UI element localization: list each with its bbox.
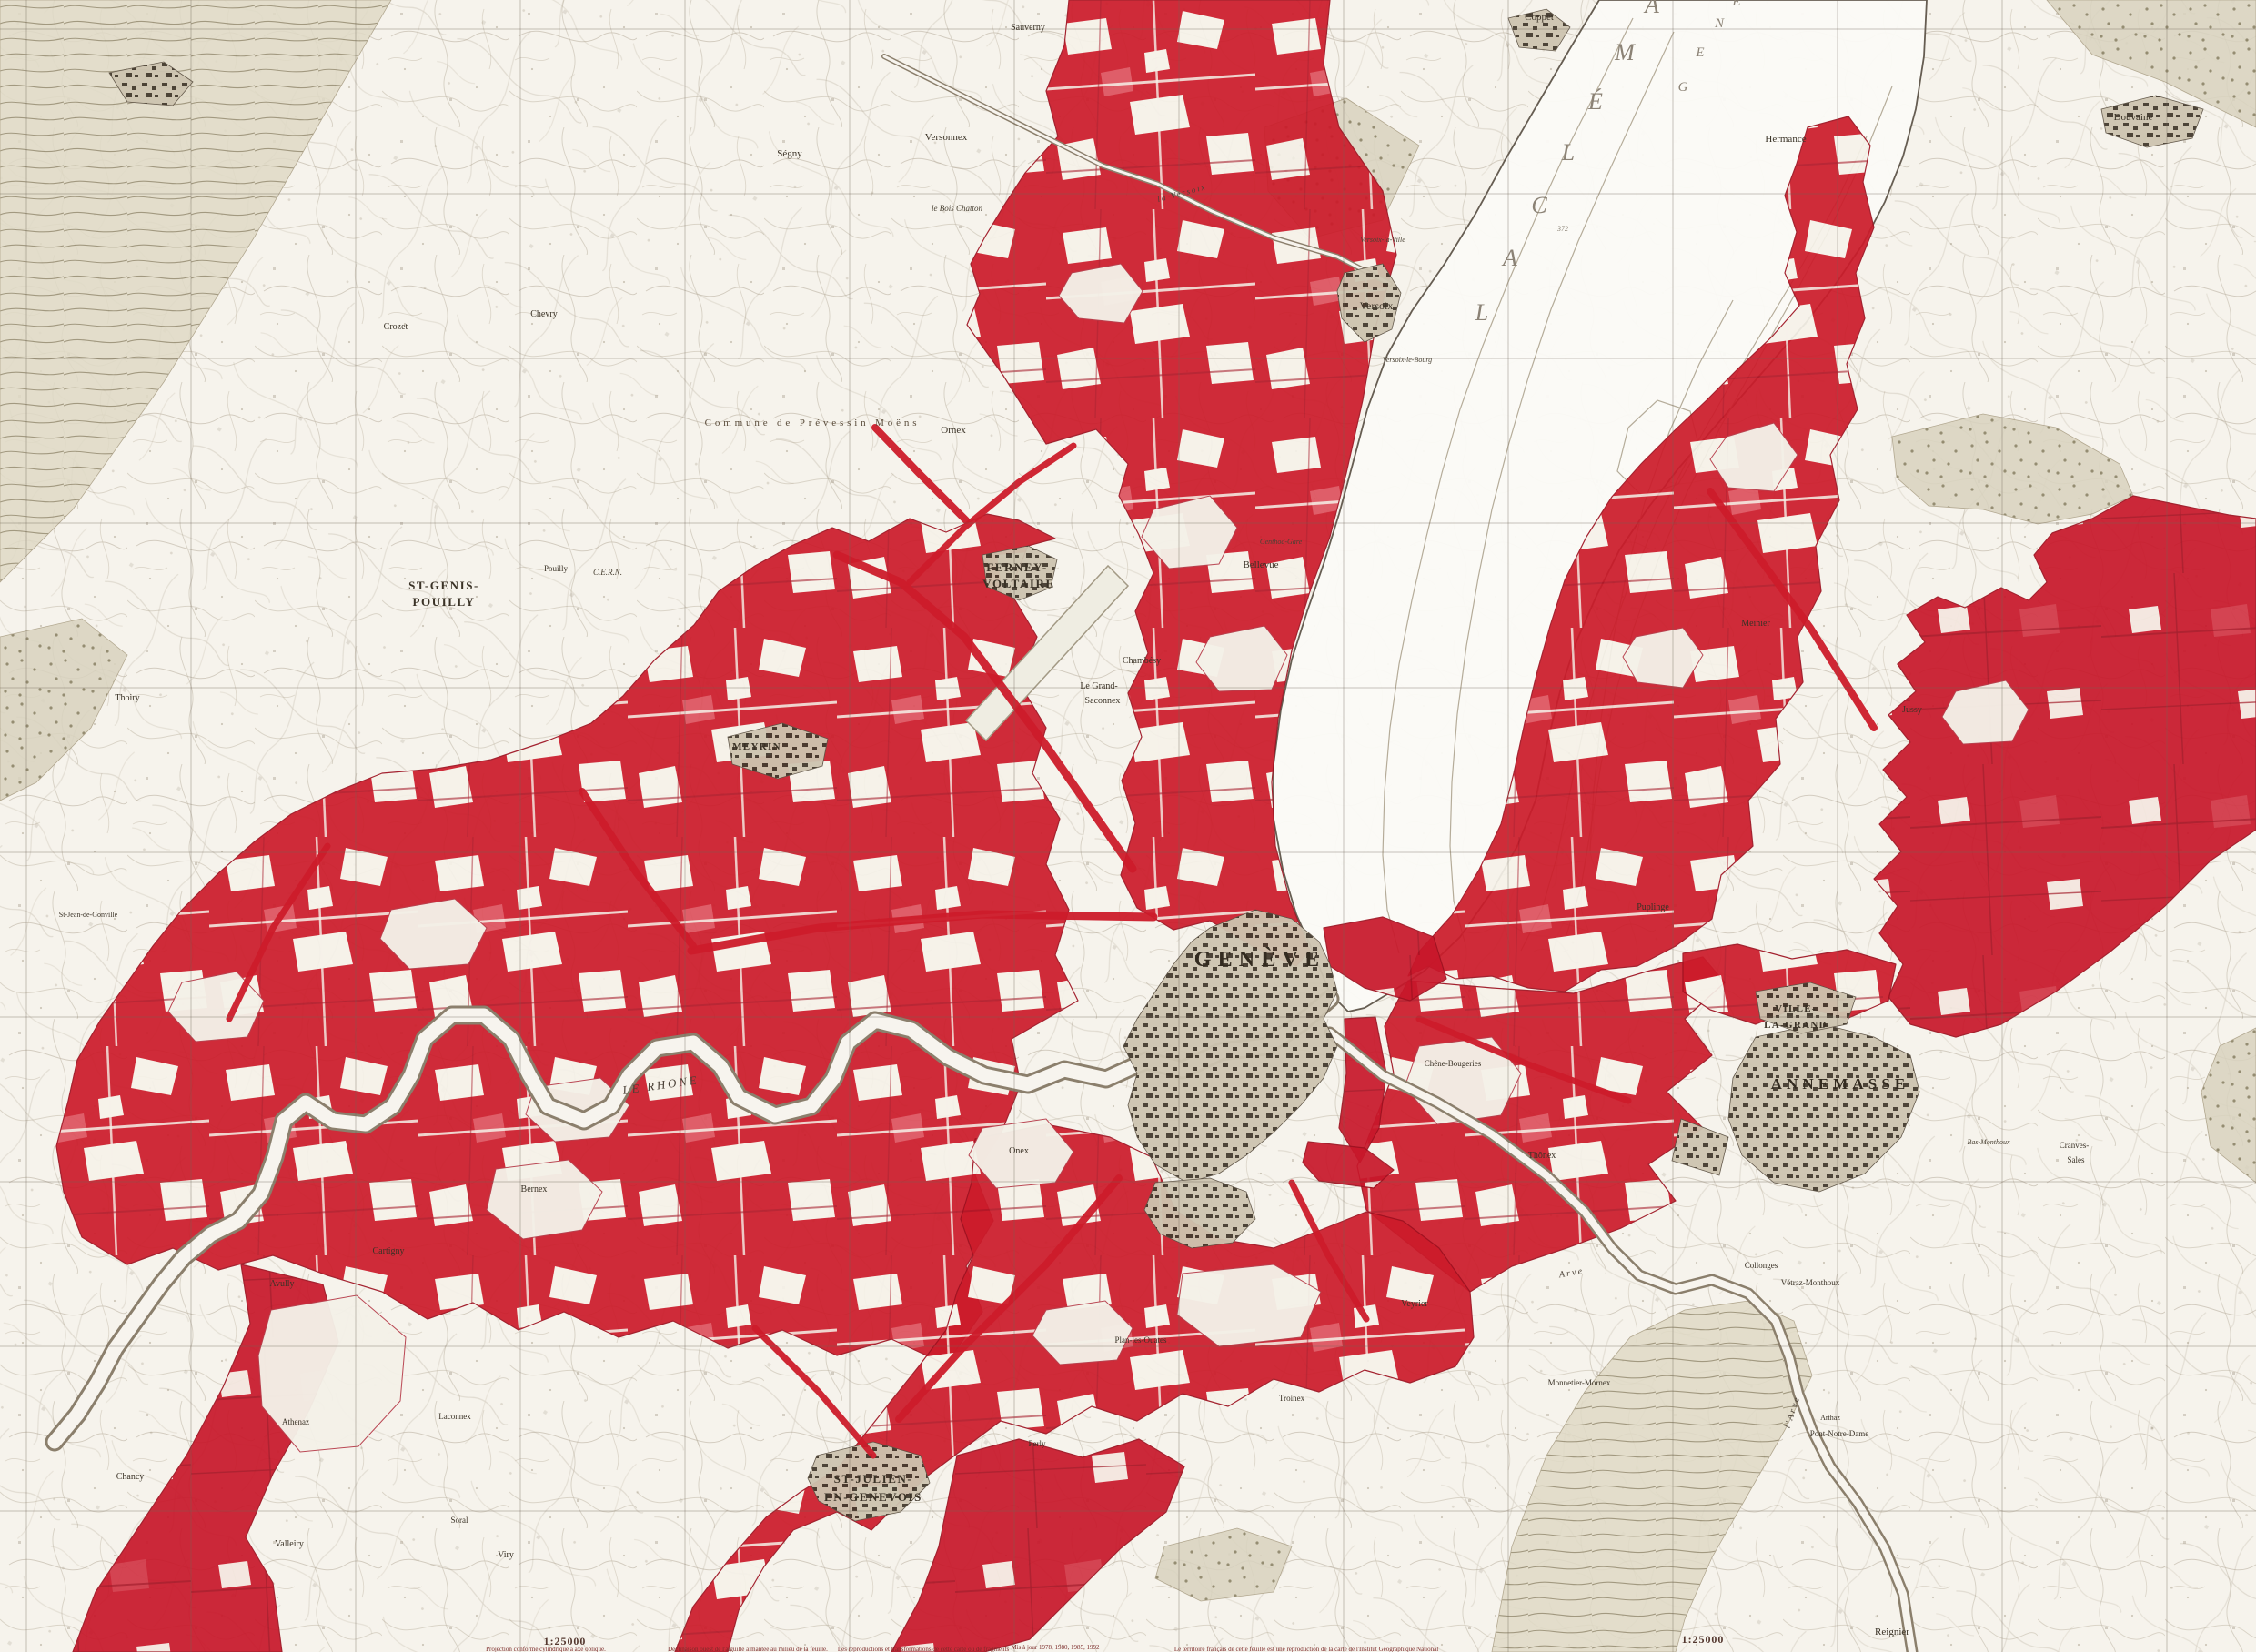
label-coppet: Coppet: [1525, 12, 1554, 23]
label-st-jean-de-gonville: St-Jean-de-Gonville: [59, 911, 118, 919]
label-genthod-gare: Genthod-Gare: [1260, 538, 1303, 546]
lake-letter: L: [1475, 299, 1488, 326]
label-la-grand: LA-GRAND: [1764, 1020, 1828, 1031]
label-ville: VILLE-: [1775, 1003, 1817, 1014]
label-plan-les-ouates: Plan-les-Ouates: [1115, 1335, 1167, 1345]
label-reignier: Reignier: [1875, 1627, 1909, 1637]
label-v-traz-monthoux: Vétraz-Monthoux: [1781, 1278, 1840, 1287]
label-jussy: Jussy: [1902, 705, 1922, 715]
lake-letter-small: N: [1714, 16, 1725, 31]
lake-letter: A: [1643, 0, 1659, 18]
label-commune-de-pr-vessin-mo-ns: Commune de Prévessin Moëns: [705, 418, 921, 428]
map-canvas: LACLÉMAGENÈ372GENÈVEANNEMASSEFERNEY-VOLT…: [0, 0, 2256, 1652]
label-perly: Perly: [1029, 1439, 1046, 1448]
label-cranves: Cranves-: [2060, 1141, 2090, 1150]
lake-letter: É: [1587, 88, 1603, 115]
label-chancy: Chancy: [116, 1472, 145, 1482]
label-c-e-r-n: C.E.R.N.: [593, 568, 622, 577]
label-bernex: Bernex: [521, 1184, 548, 1194]
label-monnetier-mornex: Monnetier-Mornex: [1548, 1378, 1611, 1387]
label-ornex: Ornex: [941, 425, 966, 436]
label-crozet: Crozet: [384, 322, 408, 332]
label-pont-notre-dame: Pont-Notre-Dame: [1810, 1429, 1868, 1438]
map-sheet: LACLÉMAGENÈ372GENÈVEANNEMASSEFERNEY-VOLT…: [0, 0, 2256, 1652]
label-st-julien: ST-JULIEN-: [834, 1472, 913, 1486]
label-chamb-sy: Chambésy: [1123, 656, 1161, 666]
label-thoiry: Thoiry: [115, 693, 139, 703]
label-veyrier: Veyrier: [1401, 1299, 1428, 1309]
lake-letter: M: [1614, 39, 1636, 65]
label-bellevue: Bellevue: [1243, 559, 1278, 570]
scale-label: 1:25000: [1682, 1633, 1725, 1646]
label-ferney: FERNEY-: [986, 560, 1048, 574]
depth-label: 372: [1556, 225, 1568, 233]
label-meinier: Meinier: [1741, 619, 1770, 629]
label-versonnex: Versonnex: [925, 132, 968, 143]
footer-note: Déclinaison ouest de l'aiguille aimantée…: [668, 1646, 828, 1652]
label-ch-ne-bougeries: Chêne-Bougeries: [1425, 1059, 1482, 1068]
lake-letter: C: [1531, 192, 1547, 218]
label-collonges: Collonges: [1745, 1261, 1778, 1270]
label-douvaine: Douvaine: [2114, 112, 2153, 123]
label-s-gny: Ségny: [777, 148, 802, 159]
label-saconnex: Saconnex: [1085, 696, 1121, 706]
label-valleiry: Valleiry: [275, 1539, 304, 1549]
label-versoix-la-ville: Versoix-la-Ville: [1360, 236, 1405, 244]
label-st-genis: ST-GENIS-: [408, 579, 479, 592]
lake-letter-small: E: [1695, 45, 1704, 60]
label-puplinge: Puplinge: [1637, 902, 1669, 912]
label-troinex: Troinex: [1279, 1394, 1305, 1403]
label-annemasse: ANNEMASSE: [1771, 1075, 1910, 1093]
label-pouilly: POUILLY: [413, 595, 476, 609]
label-pouilly: Pouilly: [544, 564, 569, 573]
label-avully: Avully: [269, 1279, 294, 1289]
label-athenaz: Athenaz: [282, 1417, 309, 1426]
label-voltaire: VOLTAIRE: [982, 577, 1054, 590]
lake-letter-small: È: [1731, 0, 1740, 9]
label-viry: Viry: [498, 1550, 514, 1560]
footer-note: Projection conforme cylindrique à axe ob…: [486, 1646, 606, 1652]
label-en-genevois: EN-GENEVOIS: [824, 1490, 922, 1504]
label-th-nex: Thônex: [1528, 1151, 1556, 1161]
footer-note: Les reproductions et transformations de …: [838, 1646, 1010, 1652]
lake-letter-small: G: [1678, 80, 1688, 95]
footer-note: Le territoire français de cette feuille …: [1174, 1646, 1438, 1652]
label-arthaz: Arthaz: [1820, 1414, 1840, 1422]
lake-letter: A: [1501, 245, 1517, 271]
label-sales: Sales: [2068, 1155, 2085, 1164]
label-gen-ve: GENÈVE: [1194, 948, 1326, 972]
label-chevry: Chevry: [530, 309, 557, 319]
label-onex: Onex: [1009, 1146, 1029, 1156]
footer-note: Mis à jour 1978, 1980, 1985, 1992: [1011, 1644, 1100, 1651]
label-meyrin: MEYRIN: [732, 741, 781, 752]
label-le-grand: Le Grand-: [1080, 681, 1117, 691]
label-hermance: Hermance: [1765, 134, 1806, 145]
label-bas-monthoux: Bas-Monthoux: [1967, 1138, 2010, 1146]
label-versoix: Versoix: [1360, 299, 1394, 312]
label-versoix-le-bourg: Versoix-le-Bourg: [1383, 356, 1432, 364]
label-cartigny: Cartigny: [373, 1246, 405, 1256]
label-soral: Soral: [451, 1516, 468, 1525]
label-sauverny: Sauverny: [1011, 23, 1045, 33]
lake-letter: L: [1561, 139, 1575, 166]
label-le-bois-chatton: le Bois Chatton: [932, 204, 982, 213]
label-laconnex: Laconnex: [438, 1412, 471, 1421]
